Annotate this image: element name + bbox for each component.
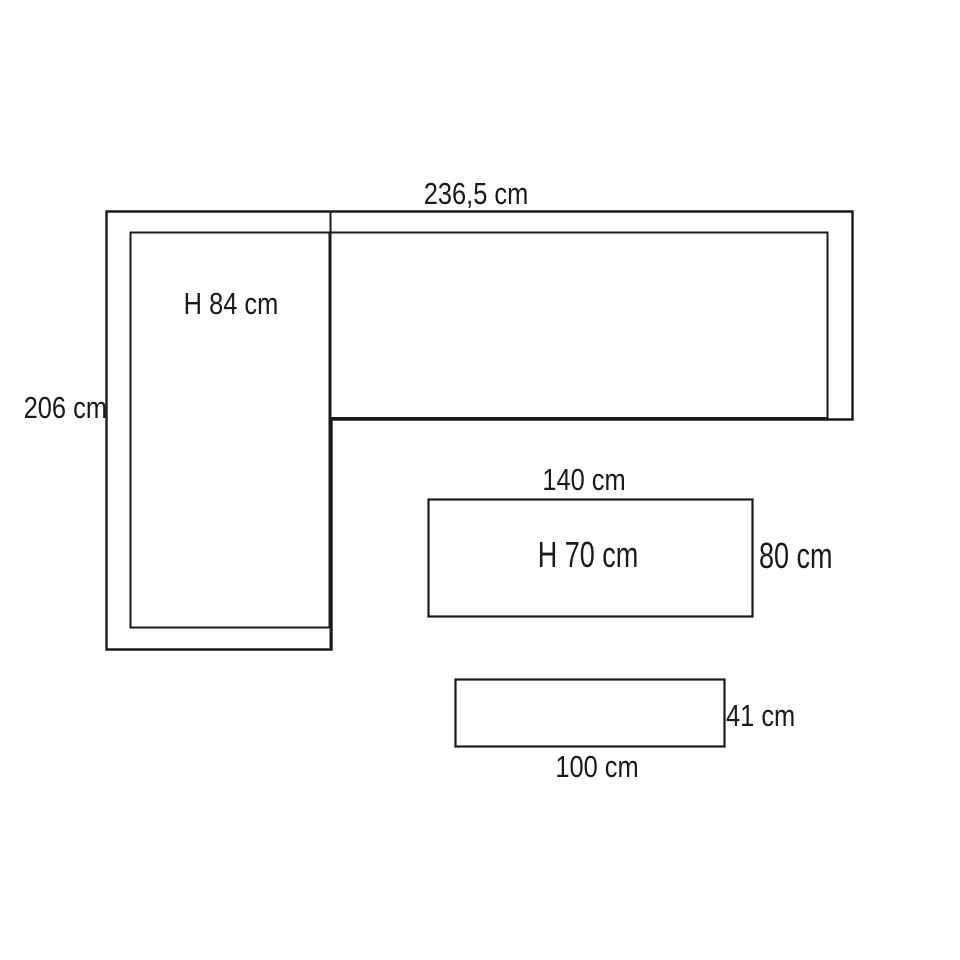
- dim-label-sofa-height: H 84 cm: [184, 287, 279, 321]
- table-rect: [456, 680, 725, 747]
- dim-label-bench-height: H 70 cm: [538, 535, 639, 575]
- dimension-drawing: [0, 0, 960, 960]
- diagram-canvas: 236,5 cm 206 cm H 84 cm 140 cm H 70 cm 8…: [0, 0, 960, 960]
- dim-label-overall-width: 236,5 cm: [424, 177, 529, 211]
- dim-label-bench-depth: 80 cm: [759, 536, 833, 576]
- dim-label-bench-width: 140 cm: [542, 463, 625, 497]
- dim-label-table-width: 100 cm: [555, 750, 638, 784]
- dim-label-overall-depth: 206 cm: [24, 391, 107, 425]
- dim-label-table-height: 41 cm: [726, 699, 795, 733]
